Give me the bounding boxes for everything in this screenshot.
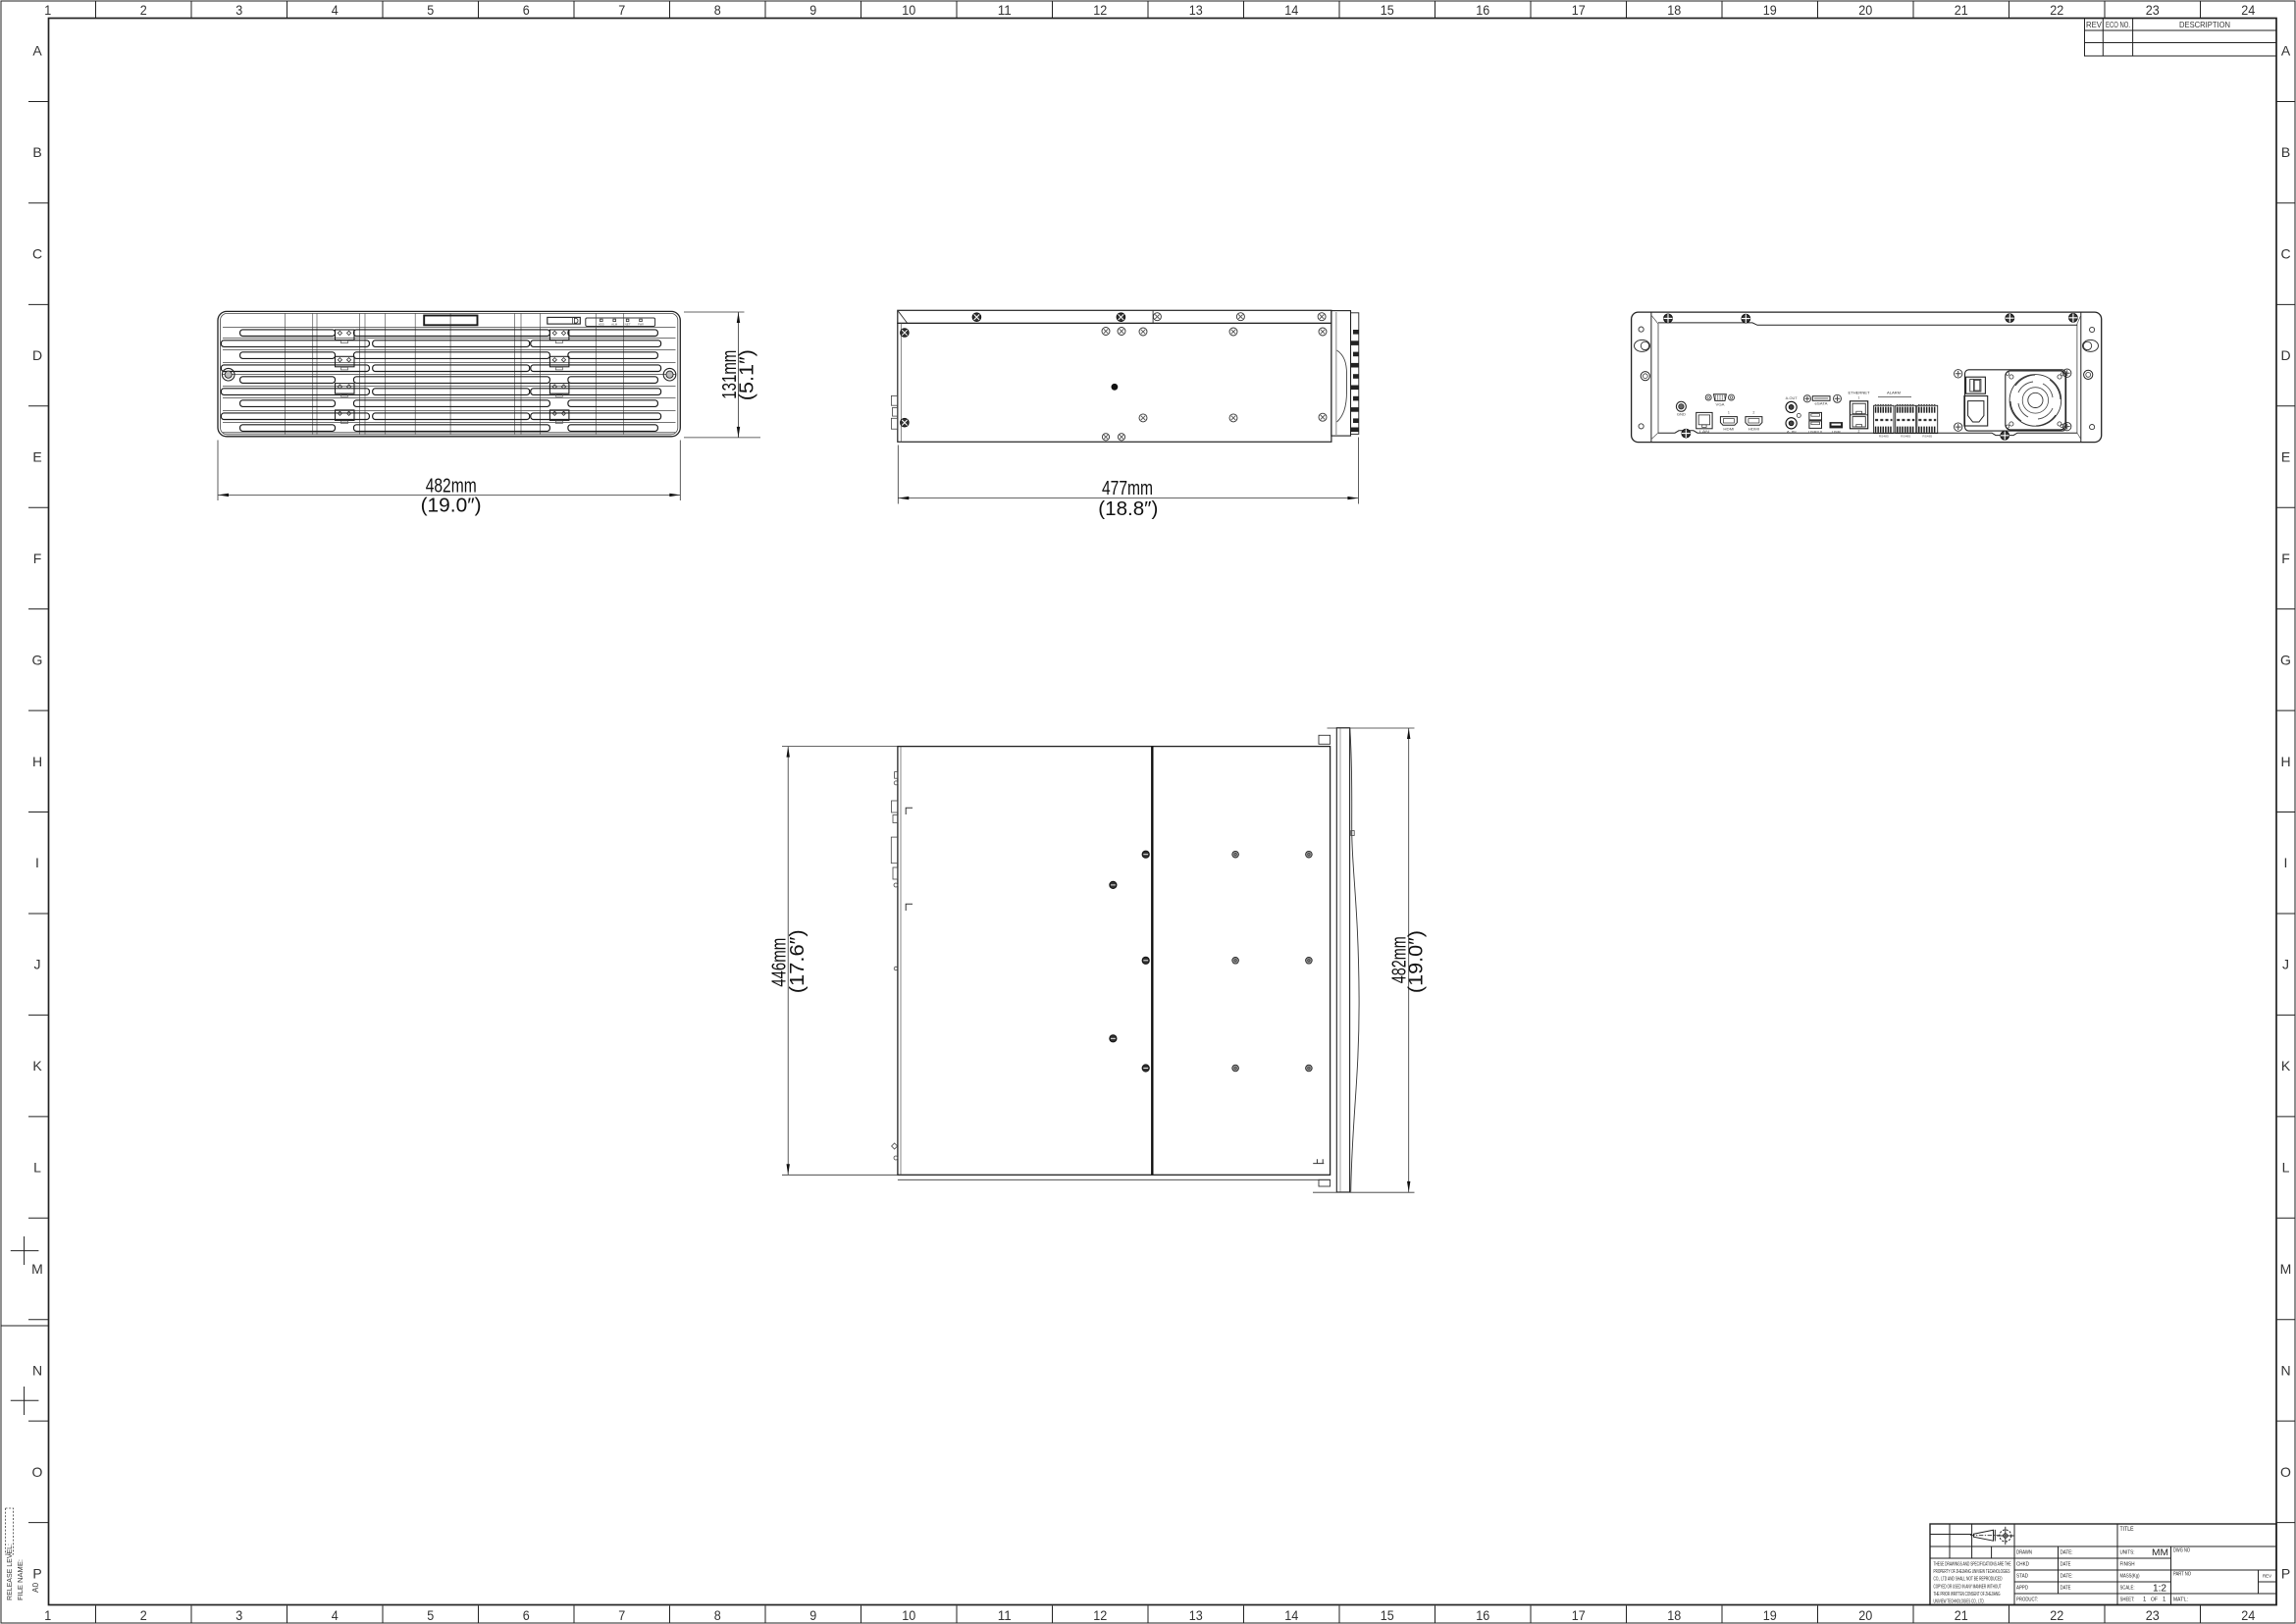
svg-text:DESCRIPTION: DESCRIPTION <box>2179 20 2230 29</box>
svg-text:COPYED OR USED IN ANY MANNER W: COPYED OR USED IN ANY MANNER WITHOUT <box>1934 1584 2002 1590</box>
svg-text:DATE: DATE <box>2061 1562 2071 1568</box>
svg-text:7: 7 <box>618 1607 625 1623</box>
svg-text:A0: A0 <box>31 1582 40 1593</box>
svg-text:5: 5 <box>427 2 434 18</box>
svg-text:2: 2 <box>1752 411 1754 415</box>
svg-text:24: 24 <box>2241 1607 2255 1623</box>
svg-text:SCALE:: SCALE: <box>2120 1586 2135 1592</box>
svg-text:I: I <box>35 855 39 870</box>
svg-text:19: 19 <box>1763 2 1777 18</box>
svg-text:P: P <box>2281 1565 2290 1581</box>
svg-text:E: E <box>32 448 41 464</box>
svg-text:18: 18 <box>1667 2 1681 18</box>
svg-text:4: 4 <box>332 1607 339 1623</box>
svg-text:1:2: 1:2 <box>2153 1584 2166 1595</box>
svg-text:9: 9 <box>809 2 816 18</box>
svg-text:THE PRIOR WRITTEN CONSENT OF Z: THE PRIOR WRITTEN CONSENT OF ZHEJIANG <box>1934 1592 2001 1598</box>
svg-text:C: C <box>32 246 42 262</box>
svg-text:2: 2 <box>140 2 147 18</box>
svg-text:23: 23 <box>2146 1607 2160 1623</box>
svg-text:11: 11 <box>998 1607 1012 1623</box>
svg-text:5: 5 <box>427 1607 434 1623</box>
svg-text:MASS(Kg): MASS(Kg) <box>2120 1574 2140 1580</box>
svg-text:A: A <box>32 43 42 59</box>
svg-text:DATE: DATE <box>2061 1586 2071 1592</box>
svg-text:E: E <box>2281 448 2290 464</box>
svg-text:12: 12 <box>1093 1607 1107 1623</box>
svg-text:F: F <box>33 550 42 566</box>
svg-text:21: 21 <box>1955 1607 1968 1623</box>
svg-text:N: N <box>32 1362 42 1378</box>
svg-text:3: 3 <box>235 1607 242 1623</box>
svg-text:STAD: STAD <box>2016 1574 2028 1580</box>
svg-text:1: 1 <box>1858 396 1860 400</box>
svg-text:PRODUCT:: PRODUCT: <box>2016 1598 2038 1603</box>
svg-text:G: G <box>32 652 43 667</box>
svg-text:12: 12 <box>1093 2 1107 18</box>
svg-text:18: 18 <box>1667 1607 1681 1623</box>
svg-text:HDMI: HDMI <box>1723 428 1734 432</box>
svg-text:B: B <box>2281 144 2290 160</box>
svg-text:F: F <box>2281 550 2290 566</box>
svg-text:C: C <box>2280 246 2290 262</box>
svg-text:(17.6″): (17.6″) <box>786 929 809 993</box>
svg-text:M: M <box>31 1261 43 1277</box>
svg-text:DRAWN: DRAWN <box>2016 1550 2032 1556</box>
svg-text:DATE:: DATE: <box>2061 1550 2073 1556</box>
svg-text:6: 6 <box>523 1607 530 1623</box>
svg-text:22: 22 <box>2050 2 2063 18</box>
svg-text:RELEASE LEVEL:: RELEASE LEVEL: <box>7 1544 14 1600</box>
svg-text:DWG NO: DWG NO <box>2173 1548 2191 1554</box>
svg-text:LAN: LAN <box>1699 430 1710 434</box>
svg-text:6: 6 <box>523 2 530 18</box>
svg-text:9: 9 <box>809 1607 816 1623</box>
svg-text:K: K <box>32 1058 42 1074</box>
svg-text:G: G <box>2280 652 2291 667</box>
svg-text:L: L <box>33 1160 41 1176</box>
svg-text:MAT'L:: MAT'L: <box>2173 1598 2188 1603</box>
svg-text:H: H <box>2280 754 2290 769</box>
svg-text:22: 22 <box>2050 1607 2063 1623</box>
svg-text:RS485: RS485 <box>1922 435 1932 439</box>
svg-text:PWR: PWR <box>638 322 644 326</box>
svg-text:10: 10 <box>902 2 915 18</box>
svg-text:16: 16 <box>1476 2 1489 18</box>
svg-text:eSATA: eSATA <box>1815 402 1829 406</box>
svg-text:17: 17 <box>1572 2 1586 18</box>
svg-text:13: 13 <box>1189 1607 1203 1623</box>
svg-text:I: I <box>2284 855 2288 870</box>
svg-text:A: A <box>2281 43 2291 59</box>
svg-text:ECO NO.: ECO NO. <box>2106 20 2130 29</box>
svg-text:NET: NET <box>625 322 631 326</box>
svg-text:J: J <box>2282 957 2289 972</box>
svg-text:APPD: APPD <box>2016 1586 2028 1592</box>
svg-text:ALM: ALM <box>611 322 617 326</box>
svg-text:17: 17 <box>1572 1607 1586 1623</box>
svg-text:8: 8 <box>714 2 721 18</box>
svg-text:13: 13 <box>1189 2 1203 18</box>
svg-text:A-OUT: A-OUT <box>1786 396 1798 400</box>
svg-text:K: K <box>2281 1058 2291 1074</box>
svg-text:USB3.0: USB3.0 <box>1808 430 1822 434</box>
svg-text:PART NO: PART NO <box>2173 1572 2192 1578</box>
svg-text:SHEET:: SHEET: <box>2120 1598 2135 1603</box>
svg-text:21: 21 <box>1955 2 1968 18</box>
svg-text:D: D <box>32 347 42 363</box>
svg-text:VGA: VGA <box>1716 403 1726 407</box>
svg-text:(18.8″): (18.8″) <box>1098 498 1158 520</box>
svg-text:L: L <box>2282 1160 2290 1176</box>
svg-text:CO., LTD AND SHALL NOT BE REP: CO., LTD AND SHALL NOT BE REPRODUCED <box>1934 1577 2003 1583</box>
svg-text:14: 14 <box>1284 1607 1298 1623</box>
svg-text:UNITS:: UNITS: <box>2120 1550 2135 1556</box>
svg-text:11: 11 <box>998 2 1012 18</box>
svg-text:(19.0″): (19.0″) <box>421 494 482 516</box>
svg-text:7: 7 <box>618 2 625 18</box>
svg-text:(19.0″): (19.0″) <box>1405 930 1428 993</box>
svg-text:B: B <box>32 144 41 160</box>
svg-text:CHKD: CHKD <box>2016 1562 2029 1568</box>
svg-text:8: 8 <box>714 1607 721 1623</box>
svg-text:REV: REV <box>2086 20 2102 29</box>
svg-text:M: M <box>2280 1261 2292 1277</box>
svg-text:15: 15 <box>1381 1607 1394 1623</box>
svg-text:23: 23 <box>2146 2 2160 18</box>
svg-text:4: 4 <box>332 2 339 18</box>
svg-text:FINISH: FINISH <box>2120 1562 2135 1568</box>
svg-text:D: D <box>2280 347 2290 363</box>
svg-text:2: 2 <box>1858 430 1860 434</box>
svg-text:15: 15 <box>1381 2 1394 18</box>
svg-text:14: 14 <box>1284 2 1298 18</box>
svg-text:GND: GND <box>1677 413 1687 417</box>
svg-text:20: 20 <box>1858 2 1872 18</box>
svg-text:477mm: 477mm <box>1102 477 1153 499</box>
svg-text:TITLE: TITLE <box>2120 1527 2134 1533</box>
svg-text:A-IN: A-IN <box>1787 430 1798 434</box>
svg-text:USB: USB <box>1832 430 1842 434</box>
svg-text:J: J <box>34 957 41 972</box>
svg-text:20: 20 <box>1858 1607 1872 1623</box>
svg-text:HDMI: HDMI <box>1748 428 1759 432</box>
svg-text:THESE DRAWINGS AND SPECIFICATI: THESE DRAWINGS AND SPECIFICATIONS ARE TH… <box>1934 1562 2011 1568</box>
svg-text:P: P <box>32 1565 41 1581</box>
svg-text:O: O <box>2280 1464 2291 1480</box>
svg-text:3: 3 <box>235 2 242 18</box>
svg-text:REV: REV <box>2263 1573 2272 1578</box>
svg-text:ALARM: ALARM <box>1887 392 1901 395</box>
svg-text:24: 24 <box>2241 2 2255 18</box>
svg-text:(5.1″): (5.1″) <box>735 349 757 400</box>
svg-text:RS485: RS485 <box>1879 435 1889 439</box>
svg-text:RS485: RS485 <box>1901 435 1910 439</box>
svg-text:PROPERTY OF ZHEJIANG UNIVIEW T: PROPERTY OF ZHEJIANG UNIVIEW TECHNOLOGIE… <box>1934 1569 2010 1575</box>
svg-text:19: 19 <box>1763 1607 1777 1623</box>
svg-text:FILE NAME:: FILE NAME: <box>18 1559 25 1600</box>
svg-text:1: 1 <box>44 2 51 18</box>
svg-text:2: 2 <box>140 1607 147 1623</box>
svg-text:1: 1 <box>1728 411 1730 415</box>
svg-text:N: N <box>2280 1362 2290 1378</box>
svg-text:ETHERNET: ETHERNET <box>1849 392 1871 395</box>
svg-text:DATE:: DATE: <box>2061 1574 2073 1580</box>
svg-text:10: 10 <box>902 1607 915 1623</box>
svg-text:OF: OF <box>2151 1598 2159 1603</box>
svg-text:16: 16 <box>1476 1607 1489 1623</box>
svg-text:O: O <box>32 1464 43 1480</box>
svg-text:MM: MM <box>2152 1547 2168 1558</box>
svg-text:UNIVIEW TECHNOLOGIES CO., LTD.: UNIVIEW TECHNOLOGIES CO., LTD. <box>1934 1599 1985 1605</box>
svg-text:HDD: HDD <box>599 322 604 326</box>
svg-text:H: H <box>32 754 42 769</box>
svg-text:1: 1 <box>44 1607 51 1623</box>
